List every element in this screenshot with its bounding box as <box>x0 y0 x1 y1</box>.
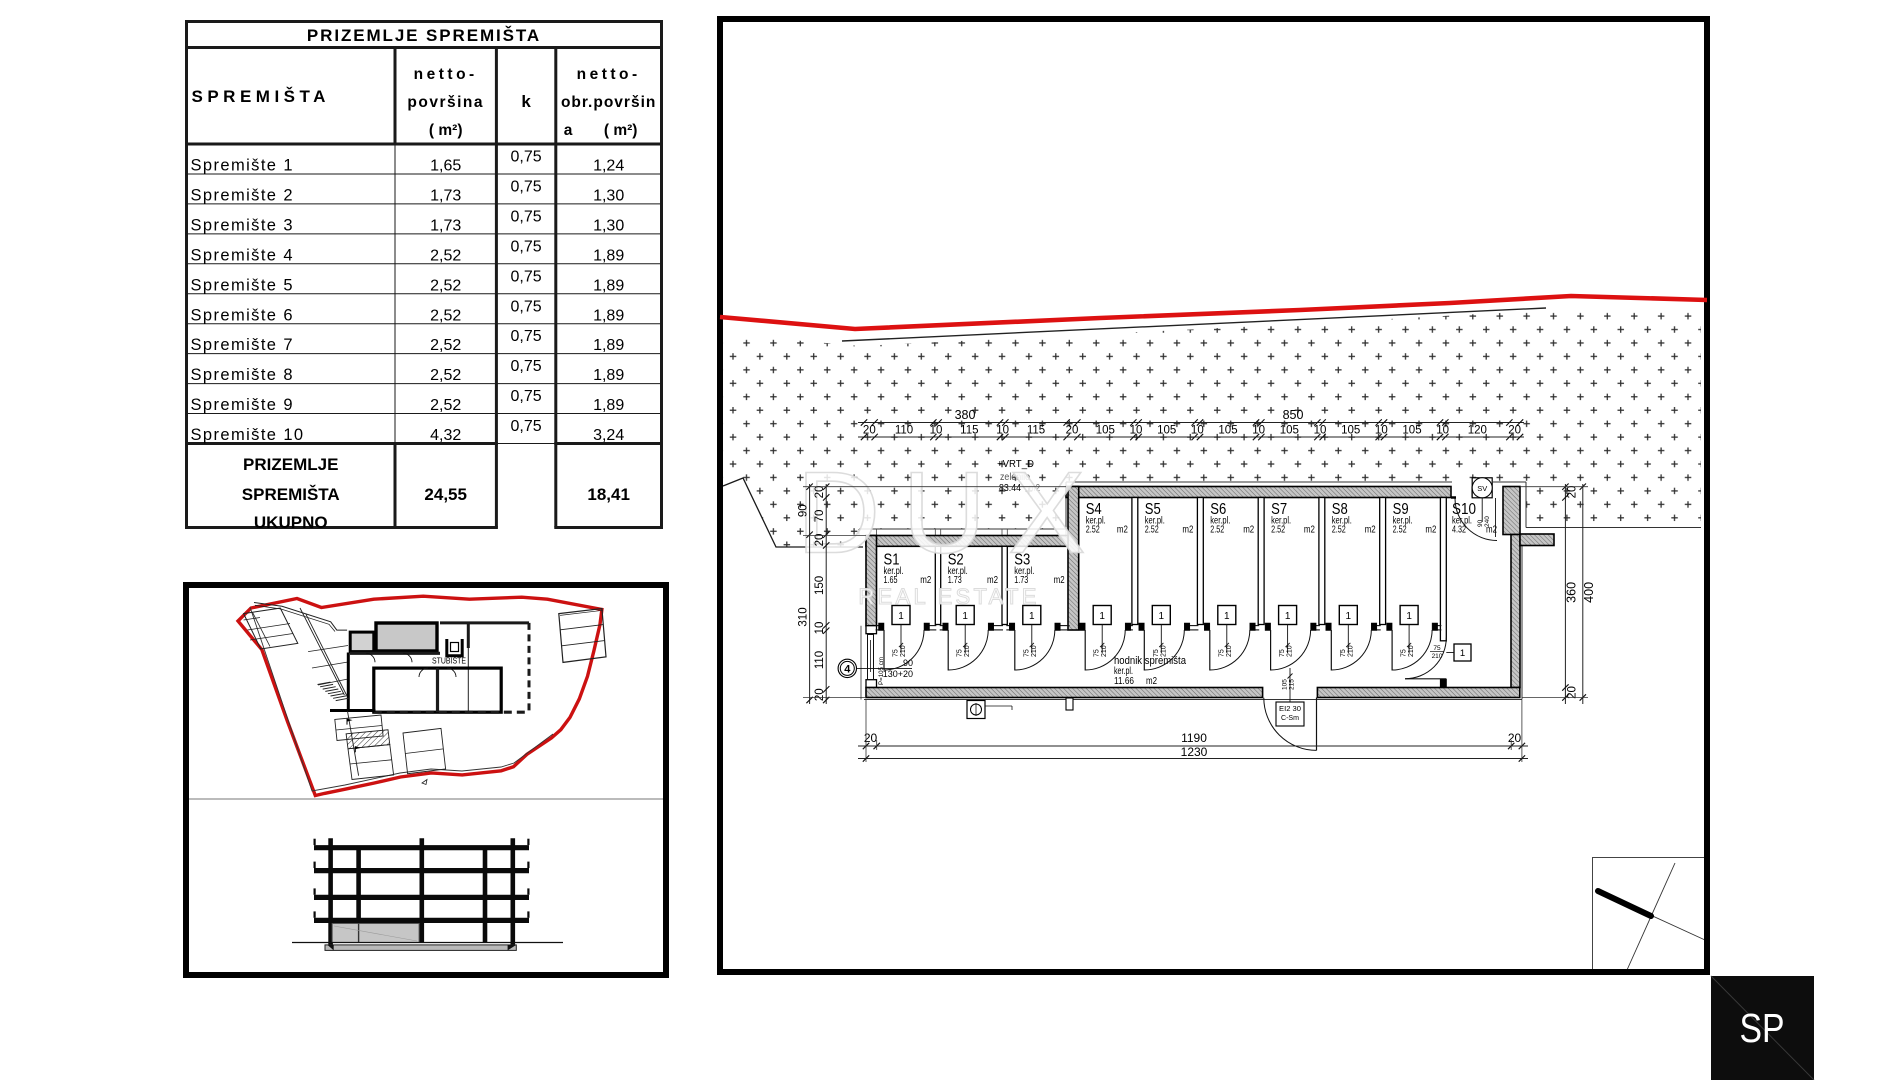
svg-text:11.66: 11.66 <box>1114 676 1134 687</box>
svg-text:1,89: 1,89 <box>593 247 624 264</box>
svg-text:20: 20 <box>1566 486 1578 499</box>
svg-text:1,73: 1,73 <box>430 217 461 234</box>
svg-text:75: 75 <box>893 649 900 657</box>
svg-text:1,24: 1,24 <box>593 158 624 175</box>
svg-text:120: 120 <box>1468 425 1487 437</box>
svg-text:2.52: 2.52 <box>1210 524 1224 536</box>
svg-text:Spremište 5: Spremište 5 <box>191 276 294 294</box>
svg-text:C-Sm: C-Sm <box>1281 715 1299 722</box>
svg-text:90: 90 <box>1477 519 1484 527</box>
svg-text:20: 20 <box>863 425 876 437</box>
svg-text:75: 75 <box>1094 649 1101 657</box>
svg-text:2,52: 2,52 <box>430 367 461 384</box>
svg-text:Spremište 1: Spremište 1 <box>191 157 294 175</box>
svg-text:m2: m2 <box>1182 524 1193 536</box>
svg-text:105: 105 <box>1096 425 1115 437</box>
svg-text:Spremište 8: Spremište 8 <box>191 366 294 384</box>
svg-text:10: 10 <box>814 622 826 635</box>
svg-text:210: 210 <box>1432 653 1443 660</box>
svg-text:210: 210 <box>964 645 971 657</box>
svg-text:1,30: 1,30 <box>593 217 624 234</box>
svg-text:1: 1 <box>1285 611 1291 622</box>
svg-text:400: 400 <box>1582 582 1596 603</box>
svg-text:m2: m2 <box>1117 524 1128 536</box>
svg-text:Spremište 9: Spremište 9 <box>191 396 294 414</box>
svg-text:Spremište 6: Spremište 6 <box>191 306 294 324</box>
svg-text:0,75: 0,75 <box>511 208 542 225</box>
svg-text:20: 20 <box>814 486 826 499</box>
svg-text:1: 1 <box>1099 611 1105 622</box>
svg-text:PRIZEMLJE: PRIZEMLJE <box>243 455 338 474</box>
svg-text:0,75: 0,75 <box>511 418 542 435</box>
svg-text:SPREMIŠTA: SPREMIŠTA <box>242 485 340 504</box>
svg-text:1,89: 1,89 <box>593 397 624 414</box>
svg-text:0,75: 0,75 <box>511 238 542 255</box>
svg-text:75: 75 <box>1218 649 1225 657</box>
svg-text:0,75: 0,75 <box>511 178 542 195</box>
svg-text:EI2 30: EI2 30 <box>1279 704 1301 713</box>
svg-text:210: 210 <box>1031 645 1038 657</box>
svg-text:netto-: netto- <box>577 66 641 83</box>
svg-text:SP: SP <box>1740 1005 1785 1051</box>
svg-text:75: 75 <box>957 649 964 657</box>
svg-text:( m²): ( m²) <box>604 122 638 139</box>
svg-text:210: 210 <box>1287 645 1294 657</box>
svg-text:1: 1 <box>962 611 968 622</box>
svg-text:70: 70 <box>814 510 826 523</box>
svg-text:130+20: 130+20 <box>883 669 913 679</box>
svg-text:210: 210 <box>1408 645 1415 657</box>
svg-text:20: 20 <box>1066 425 1079 437</box>
svg-text:Spremište 3: Spremište 3 <box>191 216 294 234</box>
svg-text:0,75: 0,75 <box>511 149 542 166</box>
svg-text:150: 150 <box>814 576 826 595</box>
svg-text:1: 1 <box>1029 611 1035 622</box>
svg-text:110: 110 <box>814 651 826 669</box>
svg-text:75: 75 <box>1433 645 1441 652</box>
svg-text:10: 10 <box>996 425 1009 437</box>
svg-text:1,89: 1,89 <box>593 337 624 354</box>
svg-text:310: 310 <box>798 607 810 626</box>
svg-text:0,75: 0,75 <box>511 298 542 315</box>
svg-text:24,55: 24,55 <box>424 485 467 504</box>
svg-text:2.52: 2.52 <box>1332 524 1346 536</box>
svg-text:0,75: 0,75 <box>511 358 542 375</box>
svg-text:1,89: 1,89 <box>593 277 624 294</box>
svg-text:1190: 1190 <box>1181 731 1207 745</box>
svg-text:1: 1 <box>1346 611 1352 622</box>
svg-text:10: 10 <box>1436 425 1449 437</box>
svg-text:10: 10 <box>1314 425 1327 437</box>
svg-text:1,65: 1,65 <box>430 158 461 175</box>
svg-text:90: 90 <box>903 658 913 668</box>
svg-text:REAL ESTATE: REAL ESTATE <box>858 584 1039 609</box>
svg-text:10: 10 <box>1130 425 1143 437</box>
svg-text:netto-: netto- <box>414 66 478 83</box>
svg-text:1230: 1230 <box>1181 745 1208 759</box>
svg-text:SV: SV <box>1477 484 1487 493</box>
svg-text:UKUPNO: UKUPNO <box>254 513 328 532</box>
svg-text:20: 20 <box>1508 731 1522 745</box>
svg-text:115: 115 <box>1027 425 1045 437</box>
svg-text:2.52: 2.52 <box>1145 524 1159 536</box>
svg-text:20: 20 <box>814 688 826 701</box>
svg-text:210: 210 <box>900 645 907 657</box>
svg-text:Spremište 2: Spremište 2 <box>191 186 294 204</box>
svg-text:20: 20 <box>1566 686 1578 699</box>
svg-text:105: 105 <box>1282 679 1289 690</box>
svg-text:2,52: 2,52 <box>430 397 461 414</box>
svg-text:2,52: 2,52 <box>430 247 461 264</box>
svg-text:18,41: 18,41 <box>587 485 630 504</box>
svg-text:210: 210 <box>1226 645 1233 657</box>
svg-text:2,52: 2,52 <box>430 337 461 354</box>
svg-text:3,24: 3,24 <box>593 427 624 444</box>
svg-text:10: 10 <box>930 425 943 437</box>
svg-text:90: 90 <box>798 504 810 517</box>
svg-text:105: 105 <box>1402 425 1421 437</box>
svg-text:1,89: 1,89 <box>593 367 624 384</box>
svg-text:2,52: 2,52 <box>430 277 461 294</box>
svg-text:Spremište 10: Spremište 10 <box>191 426 305 444</box>
svg-text:110: 110 <box>895 425 913 437</box>
svg-text:obr.površin: obr.površin <box>561 94 656 111</box>
svg-text:20: 20 <box>1508 425 1521 437</box>
svg-text:0,75: 0,75 <box>511 268 542 285</box>
svg-text:PRIZEMLJE SPREMIŠTA: PRIZEMLJE SPREMIŠTA <box>307 26 541 45</box>
svg-text:1,89: 1,89 <box>593 307 624 324</box>
svg-text:1: 1 <box>1406 611 1412 622</box>
svg-text:10: 10 <box>1375 425 1388 437</box>
svg-text:4,32: 4,32 <box>430 427 461 444</box>
svg-text:k: k <box>521 92 531 111</box>
svg-text:105: 105 <box>1280 425 1299 437</box>
svg-text:1,73: 1,73 <box>430 187 461 204</box>
svg-text:( m²): ( m²) <box>429 122 463 139</box>
svg-text:850: 850 <box>1283 408 1304 422</box>
svg-text:105: 105 <box>1341 425 1360 437</box>
svg-text:SPREMIŠTA: SPREMIŠTA <box>192 87 330 106</box>
svg-text:m2: m2 <box>1365 524 1376 536</box>
svg-text:75: 75 <box>1340 649 1347 657</box>
svg-text:10: 10 <box>1252 425 1265 437</box>
svg-text:105: 105 <box>1218 425 1237 437</box>
svg-text:4: 4 <box>844 664 851 676</box>
svg-text:a: a <box>564 122 573 139</box>
svg-text:75: 75 <box>1023 649 1030 657</box>
svg-text:2.52: 2.52 <box>1393 524 1407 536</box>
svg-text:m2: m2 <box>1425 524 1436 536</box>
svg-text:75: 75 <box>1401 649 1408 657</box>
svg-text:10: 10 <box>1191 425 1204 437</box>
svg-text:1: 1 <box>1460 648 1465 659</box>
svg-text:105: 105 <box>1157 425 1176 437</box>
svg-text:210: 210 <box>1101 645 1108 657</box>
svg-text:380: 380 <box>955 408 976 422</box>
svg-text:0,75: 0,75 <box>511 388 542 405</box>
svg-text:240: 240 <box>1484 516 1491 527</box>
svg-text:STUBIŠTE: STUBIŠTE <box>432 657 466 666</box>
svg-text:Spremište 4: Spremište 4 <box>191 246 294 264</box>
svg-text:površina: površina <box>407 94 484 111</box>
svg-text:115: 115 <box>960 425 978 437</box>
svg-text:360: 360 <box>1564 582 1578 603</box>
svg-text:210: 210 <box>1347 645 1354 657</box>
svg-text:Spremište 7: Spremište 7 <box>191 336 294 354</box>
svg-text:1: 1 <box>1224 611 1230 622</box>
svg-text:1: 1 <box>898 611 904 622</box>
svg-text:DUX: DUX <box>797 448 1108 578</box>
svg-text:75: 75 <box>1279 649 1286 657</box>
svg-text:m2: m2 <box>1243 524 1254 536</box>
svg-text:m2: m2 <box>1304 524 1315 536</box>
svg-text:P=105 cm: P=105 cm <box>878 657 885 685</box>
svg-text:1,30: 1,30 <box>593 187 624 204</box>
svg-text:2,52: 2,52 <box>430 307 461 324</box>
svg-text:m2: m2 <box>1146 676 1157 687</box>
svg-text:2.52: 2.52 <box>1271 524 1285 536</box>
svg-text:1: 1 <box>1159 611 1165 622</box>
svg-text:215: 215 <box>1289 679 1296 690</box>
svg-text:0,75: 0,75 <box>511 328 542 345</box>
